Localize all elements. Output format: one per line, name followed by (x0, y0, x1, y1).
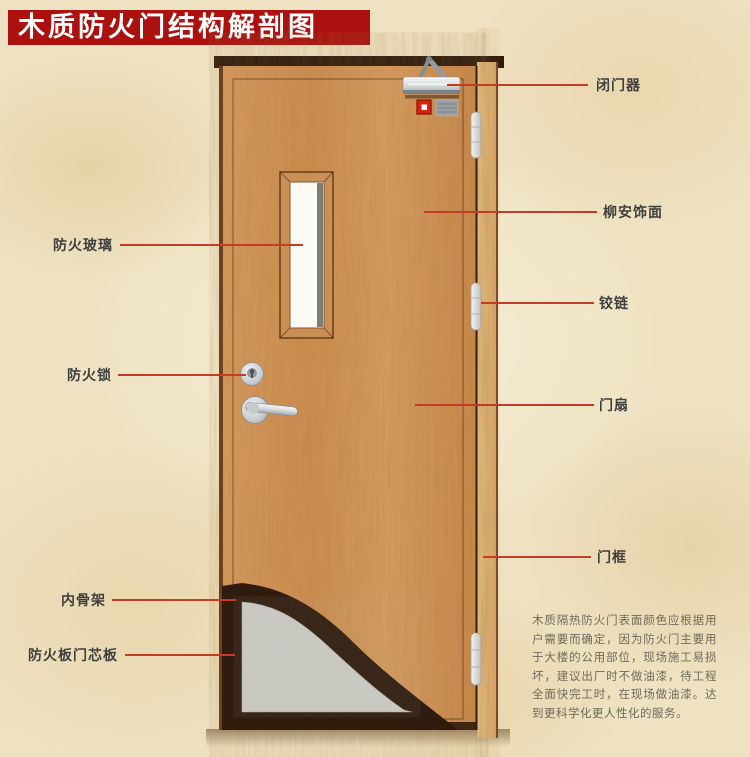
hinge-top (471, 112, 481, 158)
glass-window (280, 172, 333, 338)
leader-hinge (481, 302, 594, 304)
hinge-bottom (471, 633, 481, 685)
leader-inner-skeleton (112, 599, 236, 601)
label-fire-lock: 防火锁 (67, 365, 112, 385)
leader-fire-board-core (125, 654, 235, 656)
label-hinge: 铰链 (599, 293, 629, 313)
leader-lauan-veneer (424, 211, 597, 213)
leader-door-frame (483, 556, 591, 558)
label-fire-glass: 防火玻璃 (53, 235, 113, 255)
door-bottom-rail (222, 722, 476, 730)
label-plate (436, 100, 458, 116)
label-lauan-veneer: 柳安饰面 (603, 202, 663, 222)
hinge-middle (471, 283, 481, 330)
description-paragraph: 木质隔热防火门表面颜色应根据用户需要而确定，因为防火门主要用于大楼的公用部位，现… (532, 612, 717, 723)
leader-door-closer (447, 84, 588, 86)
label-fire-board-core: 防火板门芯板 (28, 645, 118, 665)
leader-fire-lock (118, 374, 246, 376)
door-frame-gap (476, 66, 478, 730)
page: 木质防火门结构解剖图 (0, 0, 750, 757)
label-door-leaf: 门扇 (599, 395, 629, 415)
label-door-frame: 门框 (597, 547, 627, 567)
leader-fire-glass (120, 244, 303, 246)
alarm-indicator (417, 100, 431, 114)
label-door-closer: 闭门器 (596, 75, 641, 95)
floor-shadow (206, 729, 510, 747)
label-inner-skeleton: 内骨架 (61, 590, 106, 610)
leader-door-leaf (415, 404, 594, 406)
